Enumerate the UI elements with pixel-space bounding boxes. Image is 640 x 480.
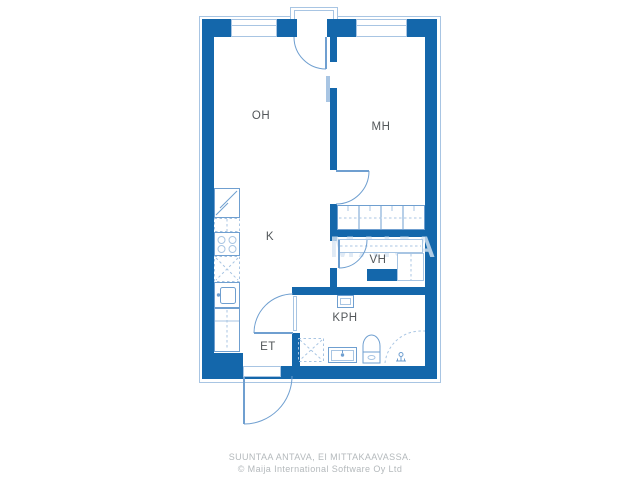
front-door-arc — [244, 376, 292, 424]
kitchen-fixtures — [215, 189, 240, 352]
shower-area-curve — [385, 331, 425, 363]
room-label-k: K — [245, 231, 295, 244]
dishwasher-mark — [216, 258, 238, 280]
copyright-text: © Maija International Software Oy Ltd — [0, 464, 640, 474]
room-label-kph: KPH — [320, 312, 370, 325]
bathroom-door-arc — [254, 294, 293, 333]
bedroom-door-arc — [336, 171, 369, 204]
room-label-vh: VH — [353, 254, 403, 267]
fixtures-overlay: MAIJA — [0, 0, 640, 480]
floor-drain-base — [396, 357, 406, 362]
room-label-et: ET — [243, 341, 293, 354]
washbasin-faucet — [341, 353, 344, 356]
sliding-panel — [326, 76, 330, 102]
balcony-door-arc — [294, 37, 326, 69]
floor-drain-icon — [399, 353, 403, 357]
room-label-mh: MH — [356, 121, 406, 134]
bedroom-wardrobes — [338, 206, 425, 230]
room-label-oh: OH — [236, 110, 286, 123]
stove-icon — [215, 233, 240, 256]
bathroom-fixtures — [299, 296, 426, 364]
floor-plan-canvas: MAIJA — [0, 0, 640, 480]
faucet-icon — [217, 293, 220, 296]
washing-machine-mark — [300, 340, 322, 360]
disclaimer-text: SUUNTAA ANTAVA, EI MITTAKAAVASSA. — [0, 452, 640, 462]
bathroom-door-frame — [294, 297, 297, 331]
toilet-icon — [363, 335, 380, 363]
ventilation-duct-icon — [338, 296, 354, 308]
